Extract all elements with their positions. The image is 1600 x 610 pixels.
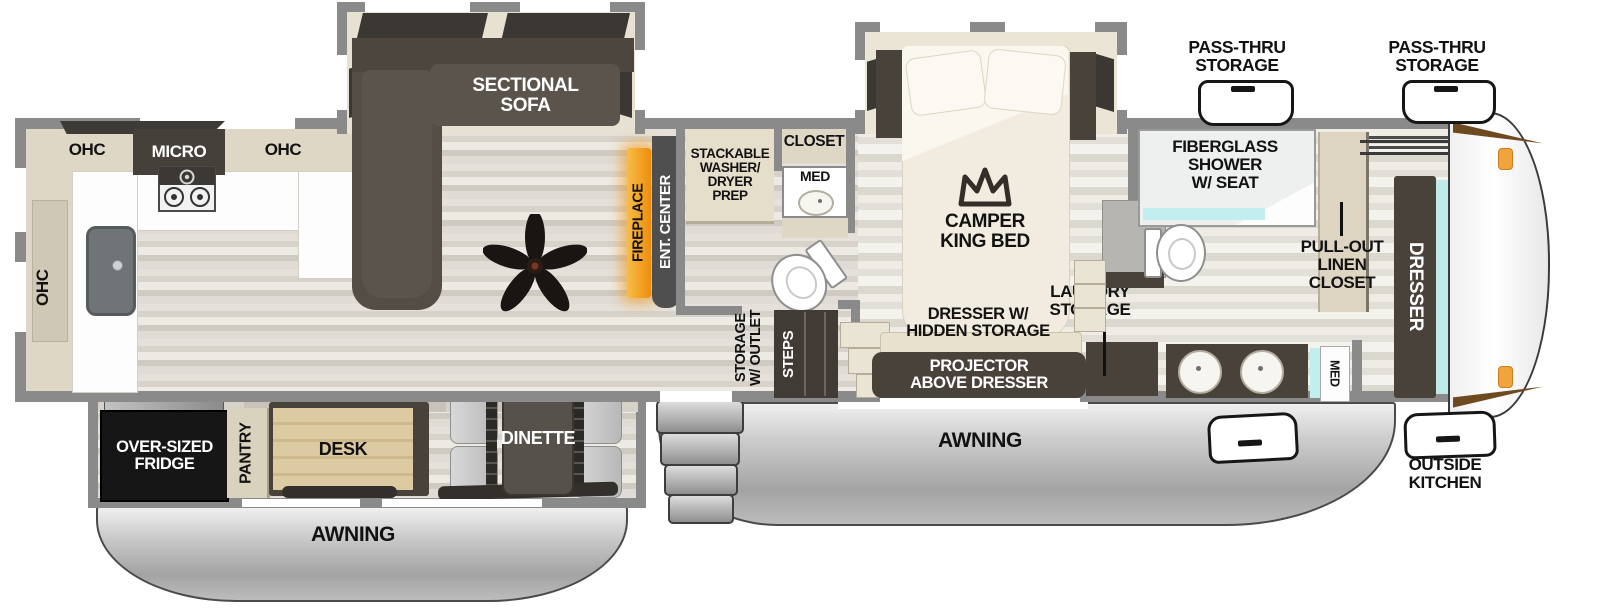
desk-label: DESK — [319, 440, 367, 459]
fridge-label: OVER-SIZED FRIDGE — [116, 439, 213, 474]
sofa-slide-window-gap-2 — [520, 2, 610, 12]
pass-thru-left-label: PASS-THRU STORAGE — [1162, 38, 1312, 75]
shower-water-line — [1143, 208, 1265, 220]
sofa-slide-window-gap-1 — [365, 2, 470, 12]
bed-pillow-left — [904, 49, 987, 117]
pass-thru-right-label: PASS-THRU STORAGE — [1362, 38, 1512, 75]
desk-floor-mat — [282, 486, 397, 498]
sofa-slide-window-gap-4 — [635, 50, 645, 110]
vanity-sink-right-faucet — [1258, 366, 1263, 371]
crown-icon — [952, 164, 1018, 210]
projector-underline — [880, 398, 1080, 405]
ohc-top-left-label: OHC — [52, 141, 122, 159]
sectional-sofa-label: SECTIONAL SOFA — [428, 76, 623, 116]
shower-label: FIBERGLASS SHOWER W/ SEAT — [1150, 138, 1300, 192]
kitchen-faucet-icon — [112, 260, 123, 271]
bed-step-3 — [1074, 308, 1106, 332]
closet-rod-2 — [1360, 152, 1452, 155]
med-mid-label: MED — [784, 169, 846, 184]
closet-label: CLOSET — [778, 134, 850, 150]
nightstand-left — [876, 50, 904, 138]
entry-door-gap — [660, 391, 732, 402]
bed-pillow-right — [983, 48, 1067, 116]
passthru-line-4 — [1368, 146, 1453, 149]
linen-pointer-line — [1340, 202, 1343, 236]
awning-left-label: AWNING — [278, 524, 428, 546]
nightstand-right — [1066, 52, 1096, 140]
interior-steps-seam-2 — [824, 312, 826, 396]
cap-marker-light-bottom — [1498, 366, 1513, 388]
ohc-side-label: OHC — [24, 232, 62, 344]
entry-step-1 — [656, 400, 744, 434]
exterior-compartment-handle — [1238, 439, 1262, 446]
vanity-mirror-strip — [1310, 348, 1320, 398]
lower-slide-gap-2 — [382, 499, 542, 507]
storage-outlet-label: STORAGE W/ OUTLET — [726, 296, 772, 400]
pass-thru-left-handle — [1231, 86, 1255, 92]
bedroom-slide-window-gap-1 — [880, 22, 970, 32]
entry-step-4 — [668, 494, 734, 524]
vanity-sink-left — [1178, 350, 1222, 394]
dinette-bench-left-slats — [486, 398, 497, 492]
awning-right-label: AWNING — [900, 430, 1060, 452]
pantry-label: PANTRY — [227, 408, 267, 498]
pass-thru-right-handle — [1434, 86, 1458, 92]
med-front-label: MED — [1320, 346, 1348, 400]
entry-step-2 — [660, 432, 740, 466]
passthru-line-3 — [1368, 136, 1453, 139]
bedroom-slide-window-gap-2 — [1005, 22, 1095, 32]
fireplace-label: FIREPLACE — [627, 150, 651, 296]
med-sink-drain — [818, 199, 822, 203]
bed-step-2 — [1074, 284, 1106, 308]
front-dresser-label: DRESSER — [1394, 176, 1436, 398]
ohc-top-right-label: OHC — [238, 141, 328, 159]
kitchen-sink — [86, 226, 136, 316]
outside-kitchen-handle — [1436, 436, 1460, 443]
closet-rod-1 — [1360, 140, 1452, 143]
toilet-front-seat — [1168, 238, 1196, 270]
laundry-cabinet — [1086, 342, 1158, 396]
toilet-front — [1144, 222, 1204, 280]
fridge: OVER-SIZED FRIDGE — [100, 410, 229, 502]
vanity-sink-left-faucet — [1196, 366, 1201, 371]
laundry-pointer-line — [1103, 326, 1106, 376]
exterior-compartment-door — [1207, 412, 1299, 465]
washer-dryer-prep-label: STACKABLE WASHER/ DRYER PREP — [691, 147, 770, 204]
washer-dryer-prep: STACKABLE WASHER/ DRYER PREP — [686, 129, 774, 224]
midbath-wall-left — [676, 129, 685, 314]
sofa-chaise-seat — [362, 70, 432, 298]
steps-label: STEPS — [776, 312, 802, 396]
interior-steps-seam-1 — [804, 312, 806, 396]
projector-box: PROJECTOR ABOVE DRESSER — [872, 352, 1086, 398]
dinette-label: DINETTE — [501, 429, 575, 448]
frontbath-wall-right — [1352, 340, 1362, 398]
desk: DESK — [273, 408, 413, 490]
bedroom-slide-window-gap-3 — [855, 60, 865, 110]
med-sink-icon — [798, 190, 834, 216]
cap-marker-light-top — [1498, 148, 1513, 170]
vanity-sink-right — [1240, 350, 1284, 394]
projector-label: PROJECTOR ABOVE DRESSER — [910, 358, 1048, 393]
window-rear-1 — [15, 168, 26, 232]
ceiling-fan-icon — [483, 214, 587, 318]
lower-slide-gap-1 — [242, 499, 360, 507]
bedroom-slide-window-gap-4 — [1117, 55, 1127, 110]
microwave-label: MICRO — [152, 143, 207, 161]
entry-step-3 — [664, 464, 738, 496]
camper-king-bed-label: CAMPER KING BED — [905, 212, 1065, 252]
bed-step-1 — [1074, 260, 1106, 284]
outside-kitchen-label: OUTSIDE KITCHEN — [1390, 456, 1500, 492]
stove-icon — [158, 166, 216, 212]
sofa-slide-window-gap-3 — [337, 55, 347, 110]
linen-closet-label: PULL-OUT LINEN CLOSET — [1290, 238, 1394, 292]
awning-left — [96, 506, 628, 602]
floorplan-canvas: AWNING AWNING OVER-SIZED FRIDGE PANTRY D… — [0, 0, 1600, 610]
